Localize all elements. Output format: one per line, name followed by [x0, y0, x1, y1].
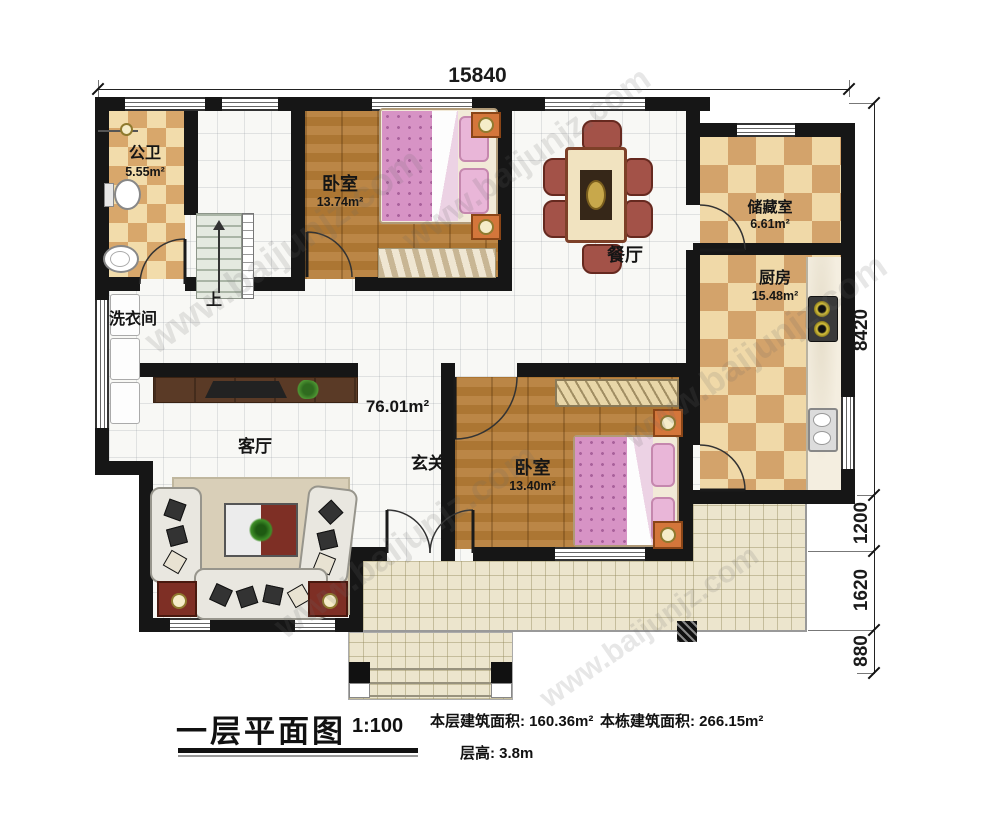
floor-terrace: [363, 561, 693, 632]
floor-height-stat: 层高: 3.8m: [460, 742, 533, 763]
hall-area-label: 76.01m²: [355, 398, 440, 416]
table-knob: [478, 219, 494, 235]
dining-chair: [625, 200, 653, 238]
room-area-bedroom1: 13.74m²: [295, 196, 385, 209]
exterior-patch: [807, 504, 857, 634]
porch-pillar: [491, 662, 512, 683]
plant: [249, 518, 273, 542]
dimension-top-value: 15840: [420, 64, 535, 88]
wall: [128, 363, 358, 377]
stairs-up-label: 上: [198, 293, 230, 310]
wall: [349, 547, 363, 632]
room-label-laundry: 洗衣间: [93, 312, 173, 329]
dimension-line-top: [98, 89, 850, 90]
toilet-bowl: [114, 179, 141, 210]
sofa-pillow: [166, 525, 188, 547]
wall: [139, 618, 170, 632]
dimension-right-880: 880: [851, 611, 873, 691]
wall: [363, 547, 387, 561]
terrace-edge: [805, 504, 807, 632]
wall: [693, 243, 855, 255]
plan-title: 一层平面图: [176, 706, 346, 751]
towel-ring: [120, 123, 133, 136]
wall: [517, 363, 693, 377]
floor-area-stat: 本层建筑面积: 160.36m²: [430, 710, 593, 731]
wall: [254, 277, 291, 291]
window: [170, 618, 210, 632]
bed1-pillow: [459, 168, 489, 214]
wardrobe: [555, 379, 679, 407]
window: [841, 397, 855, 469]
room-label-storage: 储藏室: [735, 200, 805, 216]
wall: [473, 547, 555, 561]
porch: [348, 632, 513, 700]
table-knob: [322, 593, 338, 609]
porch-step: [354, 682, 507, 684]
room-label-bedroom1: 卧室: [295, 175, 385, 194]
side-table: [308, 581, 348, 617]
sofa-pillow: [163, 550, 188, 575]
room-area-bathroom: 5.55m²: [100, 166, 190, 179]
porch-step: [354, 668, 507, 670]
nightstand: [471, 112, 501, 138]
plant: [296, 380, 320, 399]
sofa-pillow: [318, 499, 343, 524]
room-label-kitchen: 厨房: [740, 271, 810, 288]
sofa-left: [150, 487, 202, 583]
window: [737, 123, 795, 137]
stove-burner: [814, 301, 830, 317]
tv: [205, 381, 287, 398]
wall: [355, 277, 512, 291]
sink-basin: [110, 251, 130, 267]
floor-terrace: [693, 504, 807, 632]
table-knob: [660, 415, 676, 431]
title-underline: [178, 748, 418, 753]
kitchen-sink-basin: [813, 413, 831, 427]
bed1-sheet: [432, 111, 458, 221]
nightstand: [471, 214, 501, 240]
wall: [686, 250, 700, 445]
room-area-bedroom2: 13.40m²: [490, 480, 575, 493]
stairs-arrow-head: [213, 220, 225, 230]
floor-plan: 公卫 5.55m² 卧室 13.74m² 餐厅 储藏室 6.61m² 厨房 15…: [0, 0, 1000, 833]
plan-scale: 1:100: [352, 715, 403, 738]
sofa-pillow: [163, 498, 186, 521]
table-knob: [660, 527, 676, 543]
wall: [686, 490, 700, 504]
room-label-living: 客厅: [225, 438, 285, 456]
window: [125, 97, 205, 111]
terrace-corner-pillar: [677, 621, 697, 642]
stove-burner: [814, 321, 830, 337]
window: [545, 97, 645, 111]
nightstand: [653, 521, 683, 549]
room-label-bedroom2: 卧室: [495, 459, 570, 478]
toilet-tank: [104, 183, 114, 207]
table-knob: [171, 593, 187, 609]
wall: [693, 490, 855, 504]
title-underline-thin: [178, 755, 418, 757]
dimension-right-8420: 8420: [851, 290, 873, 370]
dining-dish: [586, 180, 606, 210]
washer: [110, 382, 140, 424]
stairs-arrow-line: [218, 229, 220, 293]
porch-pillar: [349, 662, 370, 683]
porch-step: [354, 695, 507, 697]
kitchen-sink-basin: [813, 431, 831, 445]
dimension-line-right: [874, 103, 875, 673]
nightstand: [653, 409, 683, 437]
wall: [95, 277, 140, 291]
porch-column-base: [491, 683, 512, 698]
wall: [210, 618, 295, 632]
stairs-railing: [242, 213, 254, 299]
window: [295, 618, 335, 632]
wall: [686, 111, 700, 205]
sofa-pillow: [317, 529, 339, 551]
window: [222, 97, 278, 111]
room-area-storage: 6.61m²: [735, 218, 805, 231]
bed2-pillow: [651, 443, 675, 487]
exterior-patch: [103, 475, 141, 625]
washer: [110, 338, 140, 380]
wall: [185, 277, 196, 291]
exterior-patch: [700, 92, 860, 123]
bed1-rug: [378, 248, 496, 278]
side-table: [157, 581, 197, 617]
table-knob: [478, 117, 494, 133]
window: [555, 547, 645, 561]
wall: [441, 363, 455, 377]
sofa-pillow: [262, 584, 283, 605]
bed2-sheet: [627, 437, 653, 545]
building-area-stat: 本栋建筑面积: 266.15m²: [600, 710, 763, 731]
sofa-pillow: [236, 586, 259, 609]
room-label-foyer: 玄关: [398, 455, 458, 473]
porch-column-base: [349, 683, 370, 698]
dining-chair: [582, 120, 622, 150]
room-area-kitchen: 15.48m²: [735, 290, 815, 303]
room-label-bathroom: 公卫: [100, 146, 190, 163]
sofa-pillow: [209, 583, 233, 607]
dining-chair: [625, 158, 653, 196]
room-label-dining: 餐厅: [595, 246, 655, 265]
